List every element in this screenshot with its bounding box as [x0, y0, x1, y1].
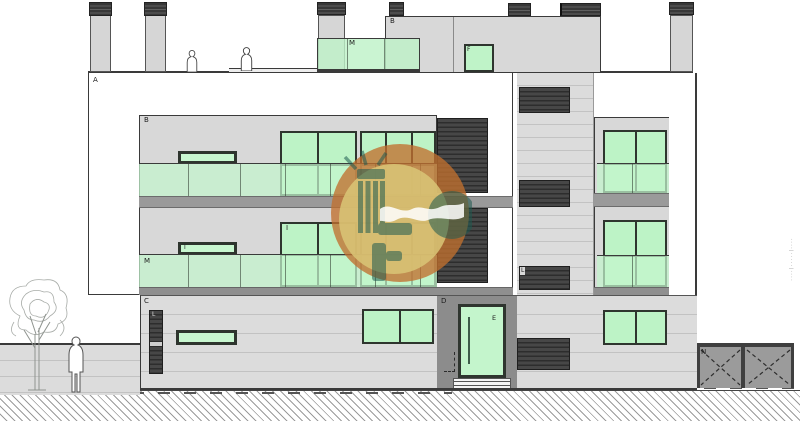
floor-slab — [594, 193, 669, 207]
roof-person — [237, 46, 256, 71]
louver-label: L — [520, 267, 525, 275]
glass-balustrade — [597, 163, 669, 194]
louver-label: L — [152, 312, 155, 318]
roof-person — [182, 49, 202, 72]
gate: N — [697, 343, 794, 388]
balustrade-joint — [632, 164, 633, 194]
chimney-cap — [317, 2, 346, 15]
louver-panel — [519, 87, 570, 113]
roof-door: F — [464, 44, 494, 72]
balustrade-joint — [240, 164, 241, 196]
gate-post — [791, 347, 794, 388]
balustrade-joint — [240, 255, 241, 287]
door-handle — [468, 317, 470, 364]
gate-post — [741, 347, 745, 388]
window-double — [603, 310, 667, 345]
balustrade-joint — [632, 256, 633, 287]
vertical-fine-print: ····|·····|···· — [786, 238, 794, 293]
chimney-cap — [389, 2, 404, 16]
watermark-logo — [328, 143, 472, 287]
entrance-door-label: E — [492, 315, 496, 322]
gate-diagonals — [697, 347, 794, 388]
chimney — [670, 15, 693, 72]
balustrade-joint — [188, 164, 189, 196]
hidden-edge-dashed — [444, 352, 455, 372]
ground-left-label: C — [144, 298, 149, 305]
facade-a-label: A — [93, 77, 98, 84]
penthouse-label: B — [390, 18, 395, 25]
window-strip — [176, 330, 237, 345]
chimney-cap — [560, 3, 601, 16]
bay-label: B — [144, 117, 149, 124]
window-mullion — [399, 311, 401, 342]
chimney-cap — [144, 2, 167, 16]
chimney-cap — [89, 2, 112, 16]
window-double — [362, 309, 434, 344]
louver-panel — [517, 338, 570, 370]
entrance-band-label: D — [441, 298, 446, 305]
louver-panel — [519, 180, 570, 207]
balustrade-joint — [285, 255, 286, 287]
building-base-line — [140, 388, 697, 390]
window-strip-label: I — [184, 245, 186, 251]
roof-glass-railing — [317, 38, 420, 70]
window-mullion — [635, 312, 637, 343]
entrance-door: E — [458, 304, 506, 378]
chimney-cap — [669, 2, 694, 15]
elevation-drawing: B F M A B L I — [0, 0, 800, 421]
street-person — [60, 334, 92, 394]
louver-panel — [519, 266, 570, 290]
chimney — [90, 15, 111, 72]
window-label: I — [286, 225, 288, 232]
roof-railing-label: M — [349, 40, 355, 47]
gate-label: N — [701, 349, 706, 356]
roof-door-label: F — [467, 47, 470, 53]
railing-joint — [347, 39, 348, 69]
louver-strip-band — [150, 342, 162, 346]
balustrade-joint — [188, 255, 189, 287]
glass-balustrade — [597, 255, 669, 287]
railing-joint — [384, 39, 385, 69]
penthouse-joint — [453, 17, 454, 72]
floor-slab — [139, 287, 513, 295]
balustrade-label: M — [144, 258, 150, 265]
floor-slab — [594, 287, 669, 295]
chimney — [145, 15, 166, 72]
chimney-cap — [508, 3, 531, 16]
gate-post — [697, 347, 700, 388]
balustrade-joint — [285, 164, 286, 196]
